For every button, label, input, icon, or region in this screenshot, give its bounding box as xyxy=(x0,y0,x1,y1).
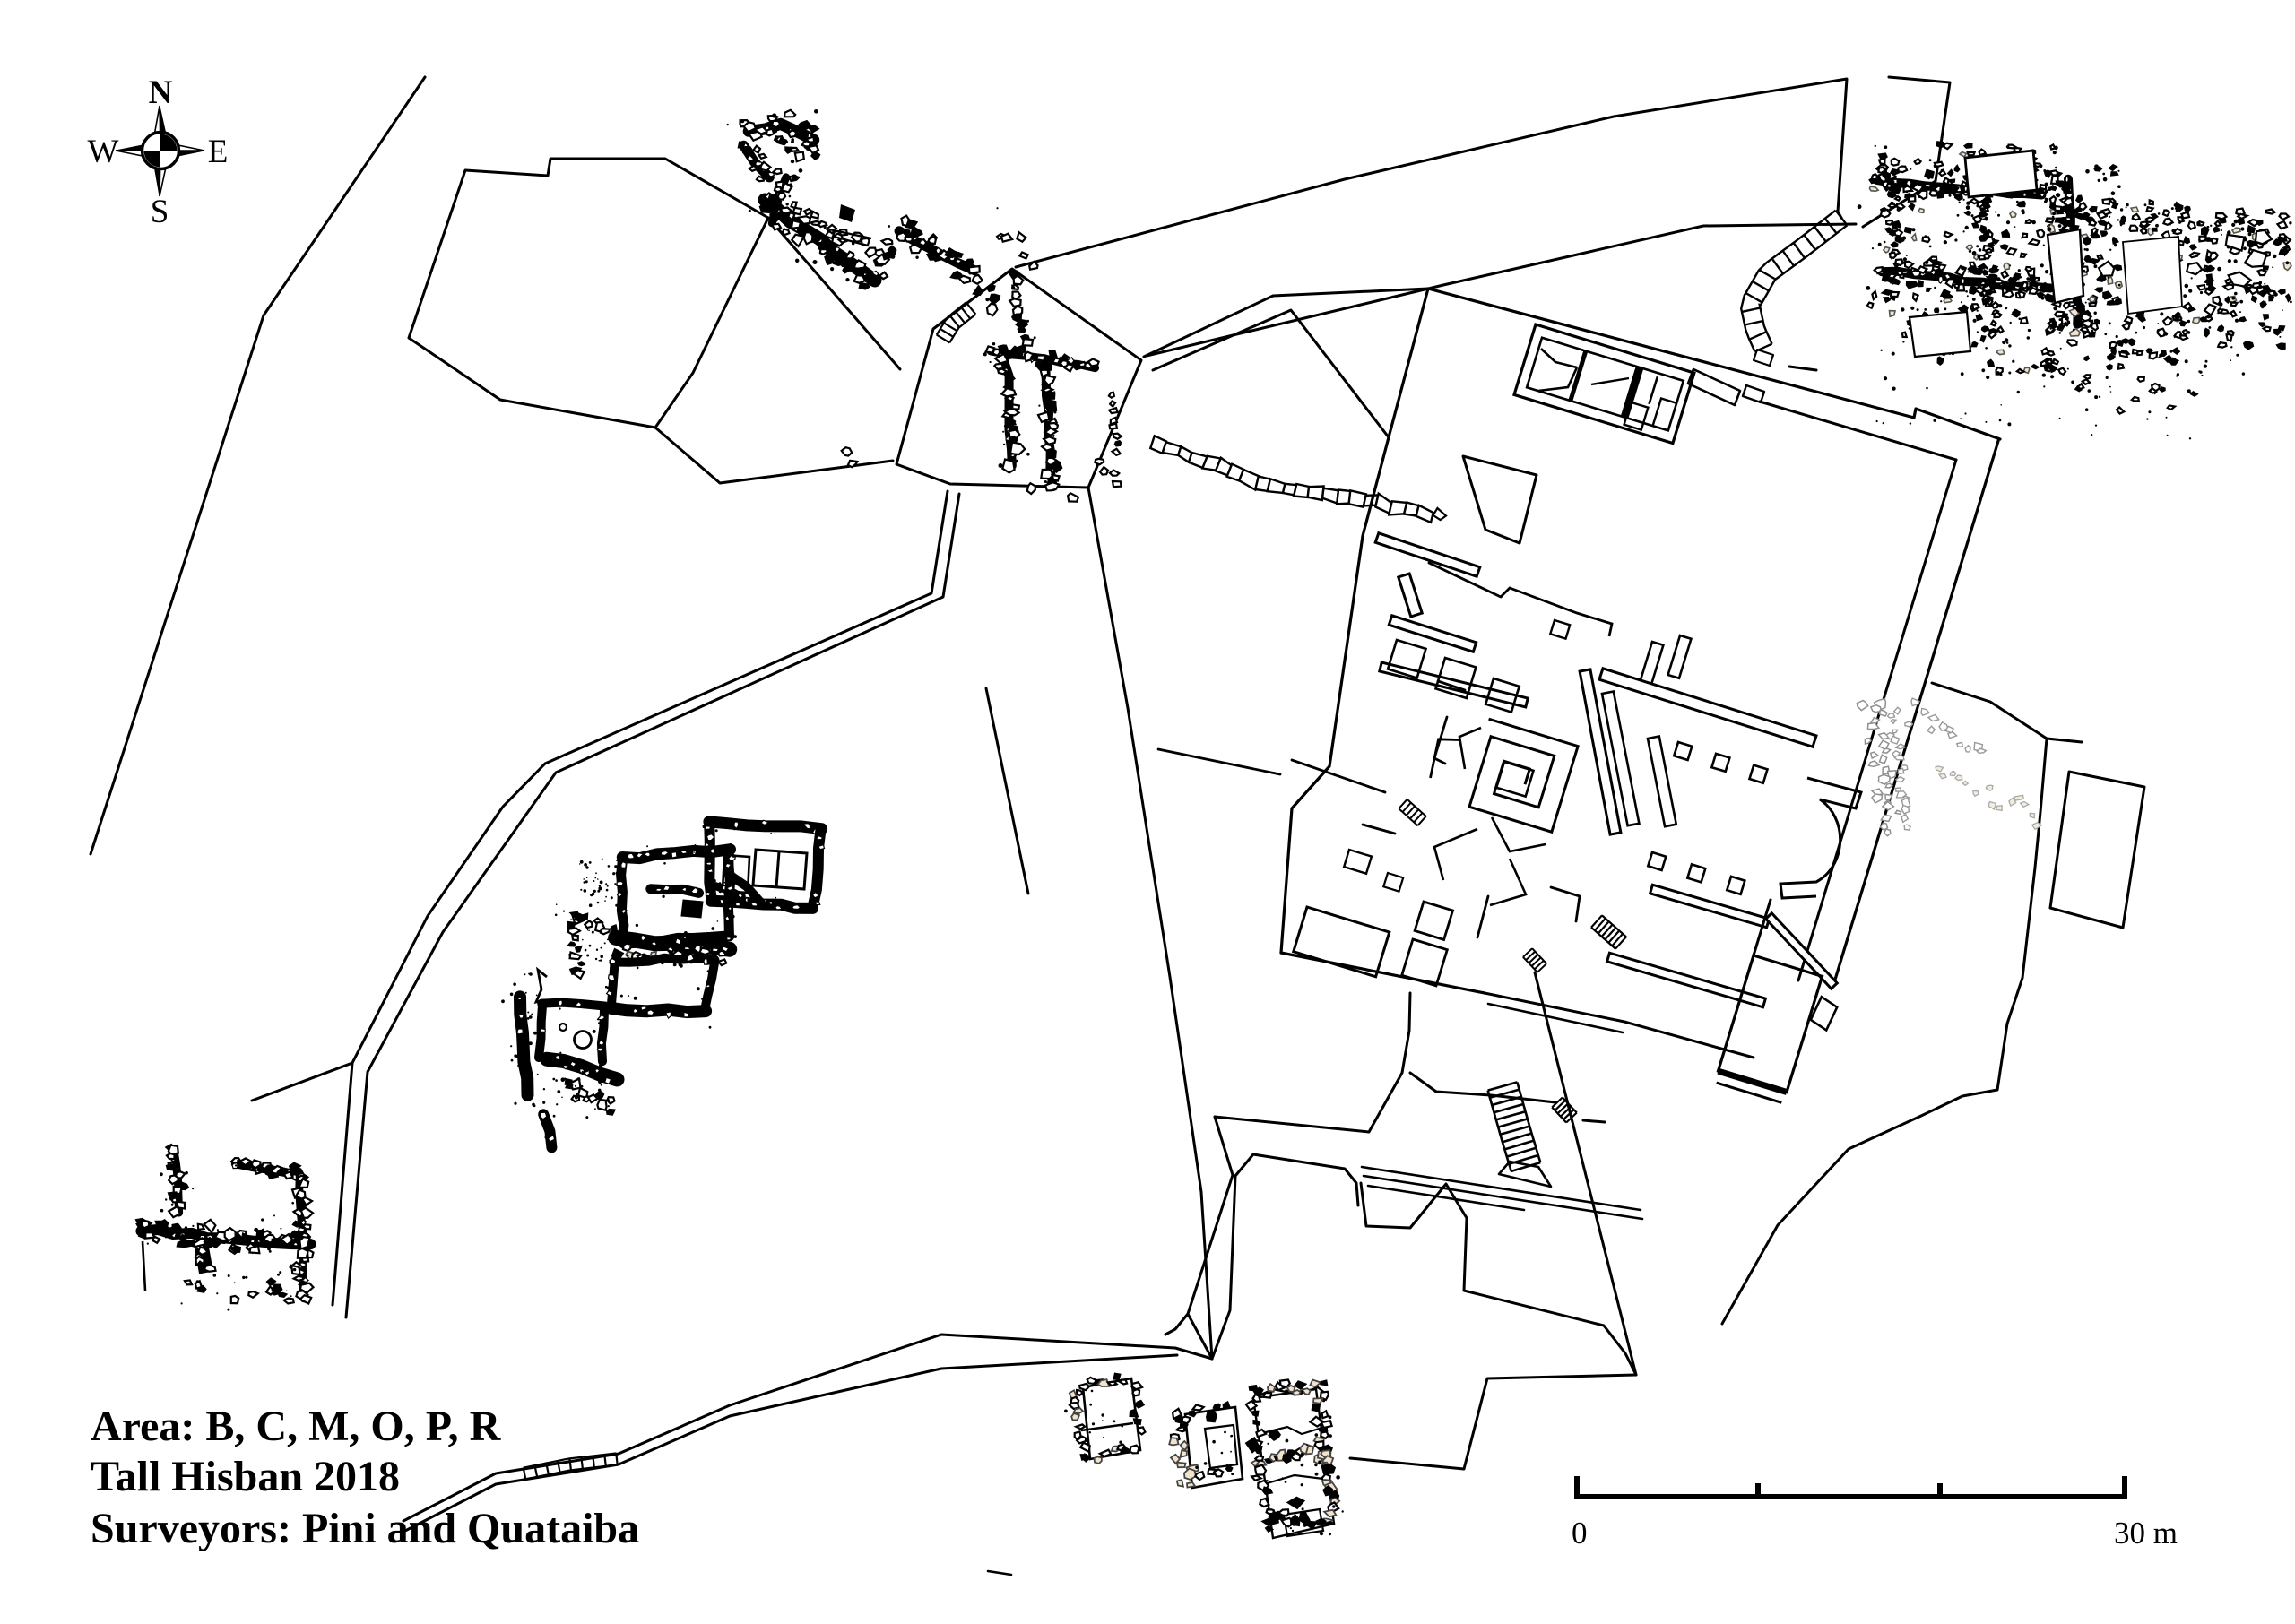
svg-text:S: S xyxy=(151,194,169,230)
svg-text:0: 0 xyxy=(1572,1516,1588,1551)
svg-text:Tall Hisban 2018: Tall Hisban 2018 xyxy=(91,1453,400,1500)
svg-text:N: N xyxy=(149,74,173,111)
svg-text:Surveyors: Pini and Quataiba: Surveyors: Pini and Quataiba xyxy=(91,1505,639,1552)
svg-text:Area: B, C, M, O, P, R: Area: B, C, M, O, P, R xyxy=(91,1403,502,1450)
svg-text:W: W xyxy=(88,134,119,170)
svg-text:30 m: 30 m xyxy=(2114,1516,2178,1551)
svg-text:E: E xyxy=(208,134,229,170)
